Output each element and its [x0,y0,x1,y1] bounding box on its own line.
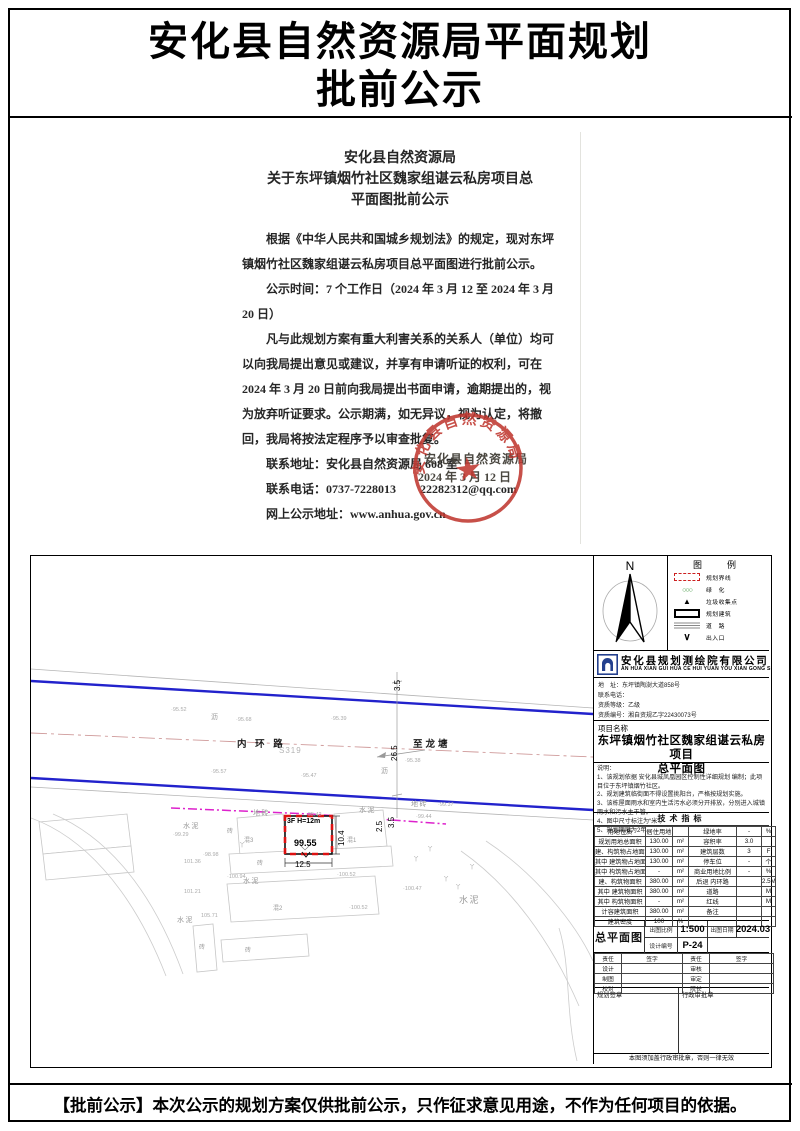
map-label: 水泥 [359,805,376,815]
date-value: 2024.03 [736,921,769,937]
signoff-cell: 设计 [595,964,622,974]
compass-legend-section: N 图 例 规划界线绿 化垃圾收集点规划建筑道 路出入口 [594,556,769,651]
footer-divider [8,1083,792,1085]
scale-label: 出图比例 [644,921,677,937]
tech-cell: 其中 建筑物面积 [595,887,646,897]
tech-cell: 2.5M [762,877,776,887]
signoff-cell: 责任 [595,954,622,964]
map-label: 水泥 [243,876,260,886]
map-label: 混3 [244,835,253,844]
company-info: 地 址：东坪镇陶澍大道858号 联系电话： 资质等级：乙级 资质编号：湘自资规乙… [594,678,769,721]
letter-scan: 安化县自然资源局 关于东坪镇烟竹社区魏家组谌云私房项目总 平面图批前公示 根据《… [180,128,620,548]
tech-cell: 130.00 [646,857,673,867]
tech-cell: m² [673,867,689,877]
map-label: 地砖 [253,808,270,818]
map-label: 3.5 [387,817,396,828]
tech-cell [762,907,776,917]
tech-cell: 用地性质 [595,827,646,837]
page-title-line1: 安化县自然资源局平面规划 [0,18,800,66]
map-label: 至龙塘 [413,736,451,750]
tech-cell: 其中 构筑物面积 [595,897,646,907]
paper-fold-line [580,132,581,544]
admin-stamp-box: 行政审批章 [679,988,769,1054]
tech-cell [737,877,762,887]
map-label: 105.71 [201,913,218,919]
page-title-line2: 批前公示 [0,66,800,114]
tech-cell: m² [673,837,689,847]
tech-row: 其中 构筑物占地面积-m²商业用地比例-% [595,867,776,877]
tech-cell: M [762,887,776,897]
title-divider [8,116,792,118]
map-label: 混2 [273,903,282,912]
entrance-symbol-icon [674,631,700,643]
tech-row: 建、构筑物面积380.00m²后退 内环路2.5M [595,877,776,887]
tech-cell: - [737,857,762,867]
signoff-cell [710,964,774,974]
announcement-page: 安化县自然资源局平面规划 批前公示 安化县自然资源局 关于东坪镇烟竹社区魏家组谌… [0,0,800,1131]
tech-cell: 道路 [689,887,737,897]
tech-cell: 建筑层数 [689,847,737,857]
company-grade: 资质等级：乙级 [598,701,769,711]
signoff-cell [710,974,774,984]
tech-cell: m² [673,847,689,857]
sheet-info-section: 总平面图 出图比例 1:500 出图日期 2024.03 设计编号 P-24 [594,921,769,953]
signoff-cell: 审核 [683,964,710,974]
letter-heading-line2: 关于东坪镇烟竹社区魏家组谌云私房项目总 [180,169,620,190]
legend-item-label: 道 路 [706,621,725,630]
tech-cell: 个 [762,857,776,867]
tech-row: 其中 构筑物面积-m²红线M [595,897,776,907]
signoff-row: 设计审核 [595,964,774,974]
map-label: 101.36 [184,859,201,865]
signoff-row: 制图审定 [595,974,774,984]
tech-cell: 商业用地比例 [689,867,737,877]
tech-cell: % [762,867,776,877]
signoff-row: 责任签字责任签字 [595,954,774,964]
legend-title: 图 例 [668,558,769,571]
tech-cell: 红线 [689,897,737,907]
company-address: 地 址：东坪镇陶澍大道858号 [598,681,769,691]
note-line: 2、规划建筑临街面不得设置挑阳台，严格按规划实施。 [597,791,767,800]
tech-cell: 其中 构筑物占地面积 [595,867,646,877]
tech-row: 用地性质居住用地绿地率-% [595,827,776,837]
legend-item: 绿 化 [668,583,769,595]
map-label: ·95.39 [331,716,347,722]
tech-cell: 备注 [689,907,737,917]
map-label: 砖 [245,945,251,954]
legend-items: 规划界线绿 化垃圾收集点规划建筑道 路出入口 [668,571,769,643]
map-label: ·95.38 [405,758,421,764]
legend-item: 规划界线 [668,571,769,583]
tech-row: 其中 建筑物面积380.00m²道路M [595,887,776,897]
tech-indicators-section: 技术指标 用地性质居住用地绿地率-%规划用地总面积130.00m²容积率3.0建… [594,813,769,921]
map-label: 混1 [347,835,356,844]
map-label: 3F H=12m [287,818,320,825]
map-label: 水泥 [459,893,480,906]
legend-item: 出入口 [668,631,769,643]
tech-cell: m² [673,907,689,917]
tech-row: 计容建筑面积380.00m²备注 [595,907,776,917]
map-label: 26.5 [390,745,399,761]
map-label: ·95.57 [211,769,227,775]
map-label: 沥 [211,712,220,722]
tech-indicators-title: 技术指标 [594,813,769,826]
tech-cell: - [737,827,762,837]
site-plan-map: 沥·95.52·95.68·95.39内 环 路S319至龙塘·95.57·95… [31,556,593,1064]
legend-item-label: 绿 化 [706,585,725,594]
tech-rows: 用地性质居住用地绿地率-%规划用地总面积130.00m²容积率3.0建、构筑物占… [595,827,776,927]
page-title: 安化县自然资源局平面规划 批前公示 [0,18,800,114]
site-plan-panel: 沥·95.52·95.68·95.39内 环 路S319至龙塘·95.57·95… [30,555,772,1068]
legend: 图 例 规划界线绿 化垃圾收集点规划建筑道 路出入口 [668,556,769,651]
map-label: 砖 [199,942,205,951]
company-phone: 联系电话： [598,691,769,701]
tech-cell: 130.00 [646,847,673,857]
letter-heading: 安化县自然资源局 关于东坪镇烟竹社区魏家组谌云私房项目总 平面图批前公示 [180,148,620,211]
map-label: 丫 [413,854,419,863]
tech-cell: - [646,867,673,877]
notes-title: 说明： [597,765,767,774]
map-label: 丫 [443,874,449,883]
signoff-cell: 签字 [710,954,774,964]
letter-heading-line3: 平面图批前公示 [180,190,620,211]
footer-notice: 【批前公示】本次公示的规划方案仅供批前公示，只作征求意见用途，不作为任何项目的依… [10,1092,790,1116]
building-symbol-icon [674,609,700,618]
title-block: N 图 例 规划界线绿 化垃圾收集点规划建筑道 路出入口 [593,556,769,1064]
map-label: ·100.52 [349,905,368,911]
site-plan-linework [31,556,593,1064]
map-label: ·100.52 [337,872,356,878]
letter-paragraph: 公示时间：7 个工作日（2024 年 3 月 12 至 2024 年 3 月 2… [242,277,558,327]
map-label: 丫 [239,840,245,849]
signoff-cell: 制图 [595,974,622,984]
map-label: S319 [279,746,302,755]
tech-cell: F [762,847,776,857]
tech-cell [737,897,762,907]
notes-section: 说明： 1、该规划依据 安化县城凤凰园区控制性详细规划 编制；此项目位于东坪镇烟… [594,763,769,813]
tech-cell: 建、构筑物面积 [595,877,646,887]
stamp-boxes-section: 规划签章 行政审批章 [594,988,769,1054]
legend-item-label: 规划界线 [706,573,731,582]
green-symbol-icon [674,583,700,596]
tech-cell: 其中 建筑物占地面积 [595,857,646,867]
tech-cell: % [762,827,776,837]
sheet-empty-cell [707,937,769,953]
plan-stamp-box: 规划签章 [594,988,679,1054]
company-cert: 资质编号：湘自资规乙字22430073号 [598,711,769,721]
company-pinyin: AN HUA XIAN GUI HUA CE HUI YUAN YOU XIAN… [621,666,767,672]
map-label: 地砖 [411,799,428,809]
map-label: 水泥 [177,915,194,925]
map-label: ·95.68 [236,717,252,723]
tech-cell: 380.00 [646,887,673,897]
trash-symbol-icon [674,595,700,607]
map-label: 丫 [469,862,475,871]
map-label: 丫 [427,844,433,853]
tech-cell [737,907,762,917]
map-label: 101.21 [184,889,201,895]
tech-cell: 380.00 [646,907,673,917]
boundary-symbol-icon [674,573,700,581]
map-label: 99.55 [294,838,317,848]
tech-row: 规划用地总面积130.00m²容积率3.0 [595,837,776,847]
tech-cell: 规划用地总面积 [595,837,646,847]
tech-indicators-table: 用地性质居住用地绿地率-%规划用地总面积130.00m²容积率3.0建、构筑物占… [594,826,776,927]
tech-cell: 380.00 [646,877,673,887]
tech-cell: 130.00 [646,837,673,847]
map-label: 砖 [227,826,233,835]
map-label: ·98.98 [203,852,219,858]
compass: N [594,556,668,651]
signoff-cell: 审定 [683,974,710,984]
tech-cell [762,837,776,847]
map-label: 砖 [257,858,263,867]
tech-cell: m² [673,877,689,887]
tech-cell: 后退 内环路 [689,877,737,887]
note-line: 1、该规划依据 安化县城凤凰园区控制性详细规划 编制；此项目位于东坪镇烟竹社区。 [597,774,767,792]
tech-cell: M [762,897,776,907]
tech-cell: 计容建筑面积 [595,907,646,917]
map-label: ·95.47 [301,773,317,779]
tech-cell: m² [673,857,689,867]
signoff-section: 责任签字责任签字设计审核制图审定校对院长 [594,953,769,988]
tech-cell: 建、构筑物占地面积 [595,847,646,857]
tech-cell: 居住用地 [646,827,673,837]
letter-paragraph: 根据《中华人民共和国城乡规划法》的规定，现对东坪镇烟竹社区魏家组谌云私房项目总平… [242,227,558,277]
legend-item: 垃圾收集点 [668,595,769,607]
tech-cell: m² [673,897,689,907]
map-label: 沥 [381,766,390,776]
tech-cell: 停车位 [689,857,737,867]
legend-item-label: 规划建筑 [706,609,731,618]
design-no-label: 设计编号 [644,937,677,953]
project-name-label: 项目名称 [594,721,769,734]
signoff-cell [622,964,683,974]
map-label: 10.4 [337,830,346,846]
map-label: 3.5 [393,680,402,691]
legend-item-label: 出入口 [706,633,725,642]
legend-item: 规划建筑 [668,607,769,619]
map-label: 12.5 [295,860,311,869]
tech-cell: - [737,867,762,877]
legend-item: 道 路 [668,619,769,631]
letter-heading-line1: 安化县自然资源局 [180,148,620,169]
official-stamp: ★ 安化县自然资源局 [400,400,536,536]
compass-n-label: N [626,559,635,573]
tech-cell [673,827,689,837]
sheet-name: 总平面图 [594,921,645,953]
map-label: ·99.29 [173,832,189,838]
road-symbol-icon [674,621,700,630]
tech-row: 建、构筑物占地面积130.00m²建筑层数3F [595,847,776,857]
scale-value: 1:500 [677,921,707,937]
map-label: ·99.44 [416,814,432,820]
design-no-value: P-24 [677,937,707,953]
map-label: ·95.52 [171,707,187,713]
map-label: 丫 [455,882,461,891]
stamp-star-icon: ★ [451,449,484,489]
tech-cell: 3 [737,847,762,857]
map-label: ·100.47 [403,886,422,892]
signoff-cell [622,974,683,984]
signoff-cell: 责任 [683,954,710,964]
map-label: ·99.37 [438,802,454,808]
tech-cell: 容积率 [689,837,737,847]
company-logo-icon [597,654,618,675]
tech-cell: m² [673,887,689,897]
map-label: 水泥 [183,821,200,831]
company-bar: 安化县规划测绘院有限公司 AN HUA XIAN GUI HUA CE HUI … [594,651,769,678]
date-label: 出图日期 [707,921,736,937]
tech-row: 其中 建筑物占地面积130.00m²停车位-个 [595,857,776,867]
map-label: 2.5 [375,821,384,832]
tech-cell: 3.0 [737,837,762,847]
signoff-cell: 签字 [622,954,683,964]
tech-cell [737,887,762,897]
project-name-section: 项目名称 东坪镇烟竹社区魏家组谌云私房项目 总平面图 [594,721,769,763]
tech-cell: 绿地率 [689,827,737,837]
legend-item-label: 垃圾收集点 [706,597,738,606]
tech-cell: - [646,897,673,907]
titleblock-footnote: 本图须加盖行政审批章，否则一律无效 [594,1054,769,1064]
